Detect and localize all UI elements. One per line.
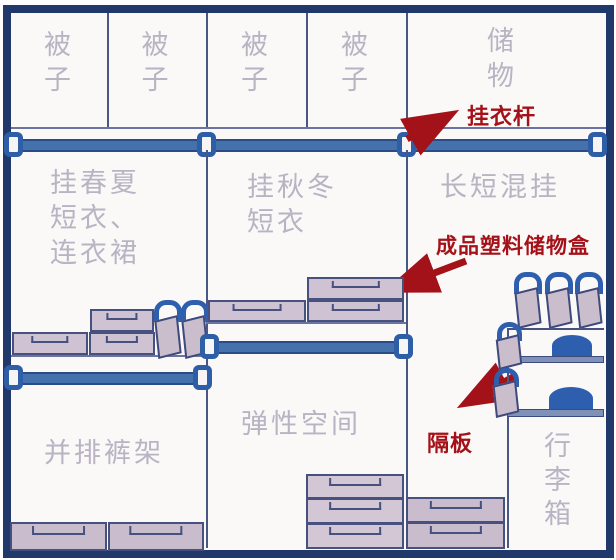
rod-bracket-icon <box>588 132 607 157</box>
rod-bracket-icon <box>200 334 219 359</box>
drawer-handle <box>329 478 381 486</box>
hanging-rod-left <box>11 372 205 385</box>
quilt-compartment-label: 被 子 <box>107 28 206 98</box>
drawer-handle <box>329 502 381 510</box>
mixed-hanging-zone-label: 长短混挂 <box>440 170 560 205</box>
handbag-icon <box>493 322 525 367</box>
storage-box <box>307 277 404 300</box>
box-handle <box>106 336 138 343</box>
drawer-handle <box>429 501 481 509</box>
drawer <box>406 497 505 523</box>
drawer <box>306 498 404 524</box>
handbag-icon <box>573 272 605 326</box>
drawer-handle <box>129 526 182 535</box>
rod-bracket-icon <box>193 365 212 390</box>
hat-icon <box>552 335 592 356</box>
storage-box <box>208 300 306 322</box>
box-handle <box>331 304 379 311</box>
flexible-space-label: 弹性空间 <box>241 407 361 442</box>
drawer-handle <box>429 526 481 534</box>
drawer <box>108 522 204 551</box>
hanging-rod <box>11 139 606 152</box>
storage-box <box>89 332 155 355</box>
luggage-label: 行 李 箱 <box>528 430 590 531</box>
drawer <box>306 523 404 549</box>
handbag-icon <box>490 368 522 415</box>
storage-box <box>12 332 88 355</box>
box-handle <box>106 313 137 320</box>
drawer <box>406 522 505 549</box>
hanging-rod-center <box>208 341 406 354</box>
quilt-compartment-label: 被 子 <box>11 28 107 98</box>
drawer-handle <box>32 526 86 535</box>
left-hanging-zone-label: 挂春夏 短衣、 连衣裙 <box>50 166 140 271</box>
center-hanging-zone-label: 挂秋冬 短衣 <box>247 170 337 240</box>
handbag-icon <box>543 272 575 326</box>
shelf-line <box>206 322 406 324</box>
storage-box <box>90 309 154 332</box>
pants-rack-label: 并排裤架 <box>44 436 164 471</box>
handbag-icon <box>512 272 544 326</box>
storage-box <box>307 300 404 322</box>
quilt-compartment-label: 被 子 <box>306 28 406 98</box>
hat-icon <box>549 387 593 410</box>
storage-compartment-label: 储 物 <box>406 24 598 94</box>
rod-bracket-icon <box>4 365 23 390</box>
divider-shelf-annotation: 隔板 <box>427 426 473 458</box>
rod-bracket-icon <box>394 334 413 359</box>
drawer <box>306 474 404 499</box>
box-handle <box>331 281 379 288</box>
drawer <box>10 522 107 551</box>
quilt-compartment-label: 被 子 <box>206 28 306 98</box>
wardrobe-diagram: 被 子 被 子 被 子 被 子 储 物 挂春夏 短衣、 连衣裙 挂秋冬 短衣 长… <box>0 0 616 560</box>
box-handle <box>31 336 68 343</box>
plastic-box-annotation: 成品塑料储物盒 <box>436 230 590 260</box>
drawer-handle <box>329 527 381 535</box>
rod-bracket-icon <box>4 132 23 157</box>
box-handle <box>233 304 282 311</box>
hanging-rod-annotation: 挂衣杆 <box>467 99 536 131</box>
